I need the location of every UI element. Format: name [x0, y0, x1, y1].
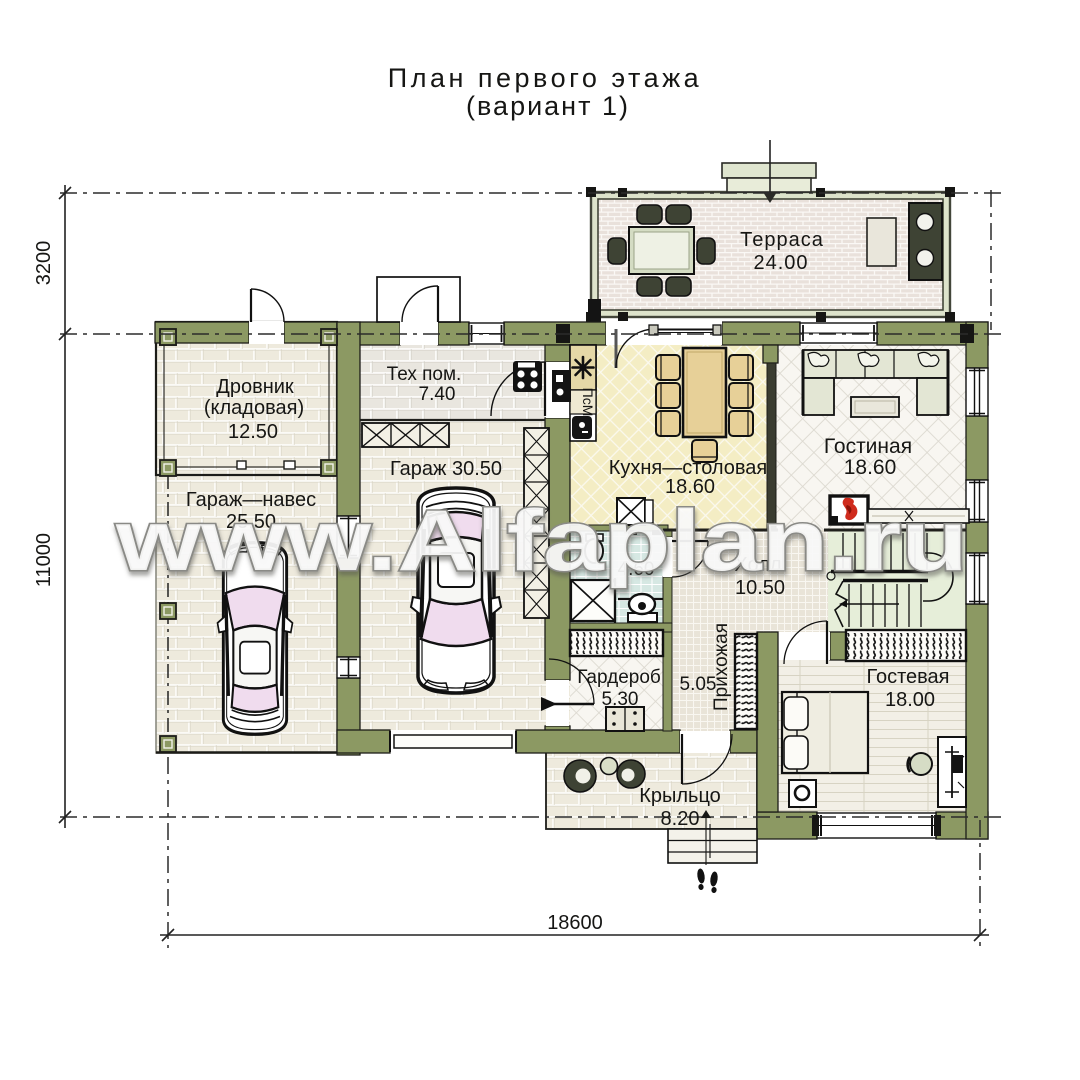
svg-text:(вариант 1): (вариант 1): [466, 91, 630, 121]
svg-text:Гардероб: Гардероб: [577, 667, 661, 688]
svg-text:Тех пом.: Тех пом.: [387, 364, 462, 385]
svg-text:www.Alfaplan.ru: www.Alfaplan.ru: [115, 493, 968, 589]
svg-text:18.60: 18.60: [844, 456, 897, 479]
svg-text:План первого этажа: План первого этажа: [388, 63, 702, 93]
svg-text:Гостевая: Гостевая: [866, 666, 949, 688]
svg-text:Гостиная: Гостиная: [824, 435, 912, 458]
svg-text:Терраса: Терраса: [740, 229, 824, 251]
svg-text:11000: 11000: [33, 533, 55, 587]
svg-text:ПсМ: ПсМ: [580, 388, 596, 417]
svg-text:Гараж 30.50: Гараж 30.50: [390, 458, 502, 480]
svg-text:(кладовая): (кладовая): [204, 397, 304, 419]
svg-text:Дровник: Дровник: [216, 376, 294, 398]
svg-text:18600: 18600: [547, 912, 603, 934]
svg-text:7.40: 7.40: [419, 384, 456, 405]
svg-text:8.20: 8.20: [661, 808, 700, 830]
svg-text:5.30: 5.30: [602, 689, 639, 710]
svg-text:Крыльцо: Крыльцо: [639, 785, 721, 807]
svg-text:12.50: 12.50: [228, 421, 278, 443]
svg-text:18.00: 18.00: [885, 689, 935, 711]
svg-text:3200: 3200: [33, 241, 55, 286]
svg-text:Прихожая: Прихожая: [711, 623, 732, 711]
svg-text:24.00: 24.00: [753, 252, 808, 274]
